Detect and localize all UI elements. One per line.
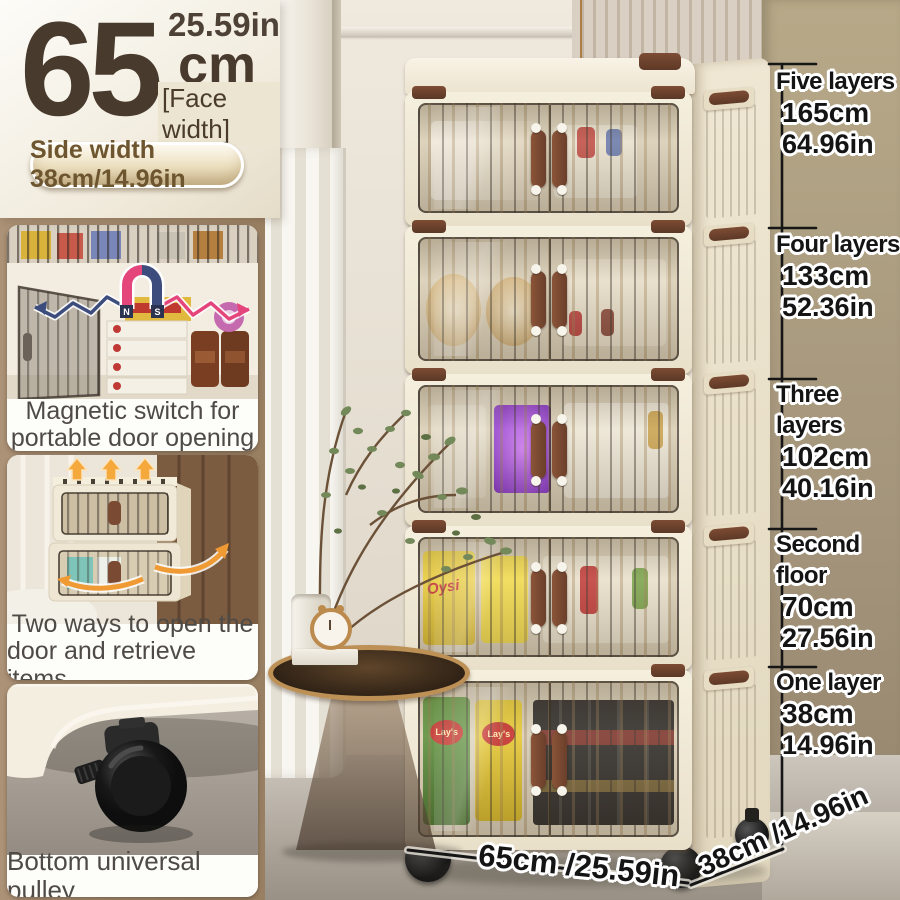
side-width-badge: Side width 38cm/14.96in — [30, 142, 244, 188]
height-label-one-layer: One layer 38cm 14.96in — [776, 667, 900, 761]
height-label-five-layers: Five layers 165cm 64.96in — [776, 66, 900, 160]
layer-height-in: 64.96in — [776, 129, 900, 160]
feature-pulley: Bottom universal pulley — [7, 684, 258, 897]
layer-name: Five layers — [776, 66, 900, 97]
corner-clip — [412, 220, 446, 233]
layer-name: Four layers — [776, 229, 900, 260]
layer-name: Three layers — [776, 379, 900, 441]
layer-height-in: 40.16in — [776, 473, 900, 504]
up-arrows-icon — [67, 458, 155, 480]
layer-name: One layer — [776, 667, 900, 698]
height-label-three-layers: Three layers 102cm 40.16in — [776, 379, 900, 504]
caption-line: Magnetic switch for — [26, 398, 240, 426]
alarm-clock — [310, 608, 352, 650]
layer-height-cm: 133cm — [776, 260, 900, 292]
face-width-value: 65 — [20, 0, 157, 141]
corner-clip — [651, 520, 685, 533]
side-rib — [706, 240, 758, 365]
magnet-feature-photo: N S — [7, 225, 258, 399]
caption-line: Bottom universal pulley — [7, 847, 258, 897]
layer-height-cm: 70cm — [776, 591, 900, 623]
corner-clip — [651, 220, 685, 233]
side-rib — [706, 388, 758, 517]
two-ways-photo — [7, 455, 258, 624]
side-rib — [706, 104, 758, 219]
height-label-four-layers: Four layers 133cm 52.36in — [776, 229, 900, 323]
feature-caption: Two ways to open the door and retrieve i… — [7, 624, 258, 680]
door-handle — [531, 271, 567, 329]
layer-name: Second floor — [776, 529, 900, 591]
cabinet-side-panel — [692, 57, 770, 888]
product-infographic: Oysi Lay's Lay's — [0, 0, 900, 900]
height-label-second-floor: Second floor 70cm 27.56in — [776, 529, 900, 654]
caption-line: Two ways to open the — [12, 611, 254, 639]
book — [292, 649, 358, 665]
caption-line: portable door opening — [11, 425, 254, 451]
feature-two-ways: Two ways to open the door and retrieve i… — [7, 455, 258, 680]
layer-height-in: 27.56in — [776, 623, 900, 654]
corner-clip — [651, 368, 685, 381]
storage-tier-1 — [405, 92, 692, 226]
clock-hands — [329, 620, 331, 630]
layer-height-in: 52.36in — [776, 292, 900, 323]
corner-clip — [651, 664, 685, 677]
layer-height-cm: 102cm — [776, 441, 900, 473]
corner-clip — [651, 86, 685, 99]
open-door — [19, 287, 99, 399]
layer-height-cm: 38cm — [776, 698, 900, 730]
feature-caption: Bottom universal pulley — [7, 855, 258, 897]
pulley-photo — [7, 684, 258, 855]
feature-caption: Magnetic switch for portable door openin… — [7, 399, 258, 451]
feature-sidebar: N S Magnetic switch for portable door op… — [0, 218, 265, 900]
feature-magnetic-switch: N S Magnetic switch for portable door op… — [7, 225, 258, 451]
caption-line: door and retrieve items — [7, 638, 258, 680]
layer-height-cm: 165cm — [776, 97, 900, 129]
magnet-s-label: S — [154, 307, 160, 317]
corner-clip — [412, 86, 446, 99]
layer-height-in: 14.96in — [776, 730, 900, 761]
side-rib — [706, 540, 758, 661]
lid-clip — [639, 53, 681, 70]
magnet-n-label: N — [123, 307, 130, 317]
storage-tier-5: Lay's Lay's — [405, 670, 692, 850]
door-handle — [531, 731, 567, 789]
door-handle — [531, 130, 567, 188]
